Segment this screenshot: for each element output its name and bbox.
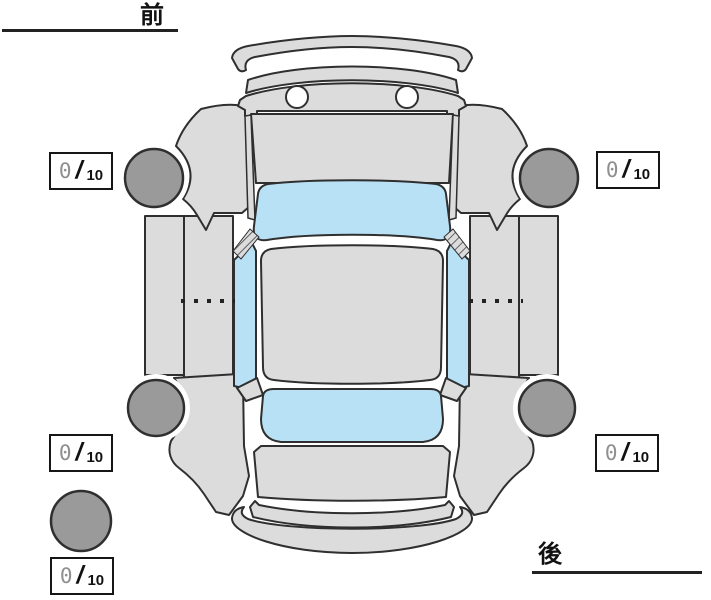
front-left-tire [125,149,183,207]
spare-tire [51,491,111,551]
score-box-front-left[interactable]: 0 / 10 [49,152,113,190]
score-max: 10 [86,168,103,188]
windshield [254,180,450,240]
left-sill-panel [145,216,184,375]
right-door-panel [470,216,519,393]
score-max: 10 [632,450,649,470]
rear-underline [532,571,702,574]
left-headlamp-circle [286,86,308,108]
inspection-sheet: 前 後 0 / 10 0 / 10 0 / 10 0 / 10 0 / 10 [0,0,711,600]
score-box-front-right[interactable]: 0 / 10 [596,151,660,189]
left-door-panel [184,216,233,393]
right-side-window [447,243,469,390]
front-label: 前 [140,4,164,28]
score-value: 0 [59,443,72,464]
front-cowl-panel [238,83,466,116]
front-underline [2,29,178,32]
score-divider: / [622,440,629,465]
score-value: 0 [60,566,73,587]
score-max: 10 [87,573,104,593]
right-sill-panel [519,216,558,375]
score-value: 0 [606,160,619,181]
rear-label: 後 [538,543,562,567]
hood-panel [251,114,453,183]
rear-window [261,389,443,442]
score-box-rear-left[interactable]: 0 / 10 [49,434,113,472]
rear-right-tire [519,380,575,436]
score-box-spare[interactable]: 0 / 10 [50,557,114,595]
trunk-edge-band [250,501,454,528]
score-divider: / [77,563,84,588]
score-max: 10 [86,450,103,470]
right-headlamp-circle [396,86,418,108]
car-diagram [0,0,711,600]
score-divider: / [76,158,83,183]
left-side-window [234,243,256,390]
rear-left-tire [128,380,184,436]
roof-panel [261,245,443,384]
score-divider: / [623,157,630,182]
score-divider: / [76,440,83,465]
score-box-rear-right[interactable]: 0 / 10 [595,434,659,472]
score-value: 0 [605,443,618,464]
score-value: 0 [59,161,72,182]
score-max: 10 [633,167,650,187]
front-right-tire [520,149,578,207]
trunk-lid [254,446,450,501]
